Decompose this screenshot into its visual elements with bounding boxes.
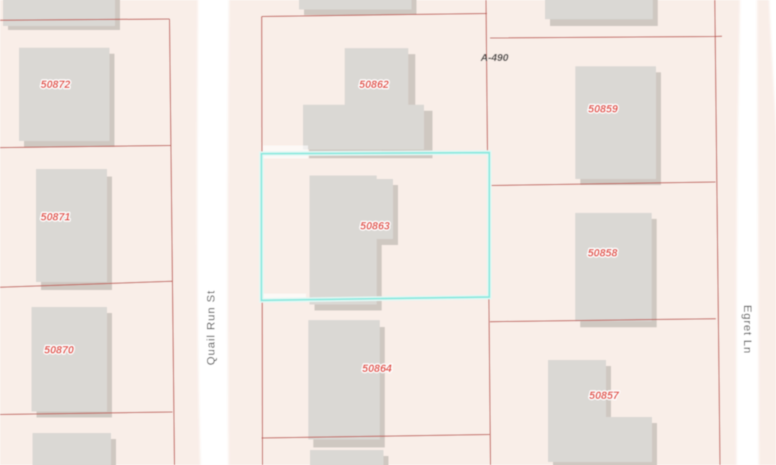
svg-text:50862: 50862 bbox=[359, 79, 389, 91]
svg-text:50872: 50872 bbox=[41, 79, 71, 91]
svg-text:50857: 50857 bbox=[589, 390, 620, 402]
svg-text:50870: 50870 bbox=[44, 344, 74, 356]
svg-text:Quail Run St: Quail Run St bbox=[205, 290, 217, 365]
svg-text:50871: 50871 bbox=[41, 212, 71, 224]
svg-text:50863: 50863 bbox=[360, 221, 390, 233]
svg-text:50859: 50859 bbox=[588, 104, 618, 116]
svg-text:A-490: A-490 bbox=[480, 53, 509, 64]
svg-text:50858: 50858 bbox=[588, 248, 618, 260]
svg-text:Egret Ln: Egret Ln bbox=[741, 305, 753, 354]
svg-text:50864: 50864 bbox=[362, 363, 392, 375]
